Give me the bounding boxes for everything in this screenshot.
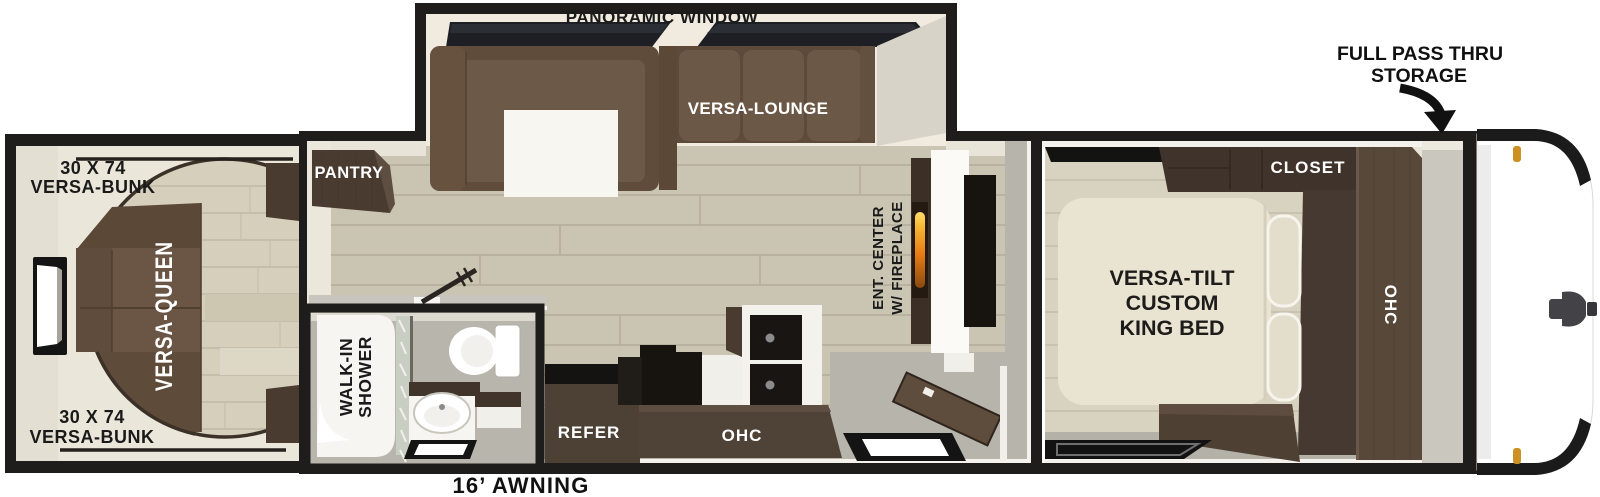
- svg-text:PANTRY: PANTRY: [315, 164, 384, 182]
- svg-text:ENT. CENTER: ENT. CENTER: [870, 206, 887, 310]
- svg-text:VERSA-BUNK: VERSA-BUNK: [30, 177, 155, 197]
- svg-text:OHC: OHC: [1381, 285, 1400, 326]
- svg-text:VERSA-LOUNGE: VERSA-LOUNGE: [688, 99, 829, 118]
- svg-text:FULL PASS THRU: FULL PASS THRU: [1337, 43, 1503, 65]
- svg-text:VERSA-QUEEN: VERSA-QUEEN: [151, 241, 178, 391]
- svg-text:CUSTOM: CUSTOM: [1126, 291, 1219, 315]
- svg-text:CLOSET: CLOSET: [1271, 158, 1346, 177]
- svg-text:30 X 74: 30 X 74: [60, 158, 126, 178]
- svg-text:30 X 74: 30 X 74: [59, 407, 125, 427]
- svg-text:WALK-IN: WALK-IN: [336, 338, 356, 416]
- svg-text:OHC: OHC: [722, 426, 763, 445]
- svg-text:SHOWER: SHOWER: [355, 336, 375, 418]
- svg-text:STORAGE: STORAGE: [1371, 65, 1467, 87]
- svg-text:KING BED: KING BED: [1119, 316, 1224, 340]
- svg-text:16’ AWNING: 16’ AWNING: [452, 473, 589, 497]
- svg-text:REFER: REFER: [558, 423, 621, 442]
- svg-text:PANORAMIC WINDOW: PANORAMIC WINDOW: [566, 8, 759, 27]
- svg-text:W/ FIREPLACE: W/ FIREPLACE: [889, 201, 906, 315]
- svg-text:VERSA-TILT: VERSA-TILT: [1109, 266, 1234, 290]
- svg-text:VERSA-BUNK: VERSA-BUNK: [29, 427, 154, 447]
